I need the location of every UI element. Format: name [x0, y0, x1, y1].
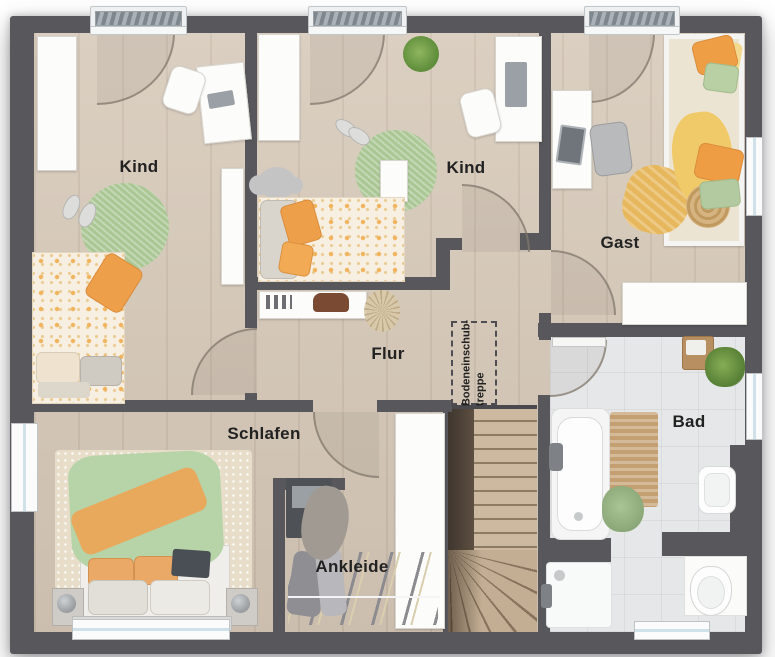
room-label-gast: Gast	[601, 233, 640, 253]
bed-foot-cushion	[38, 382, 90, 398]
room-label-flur: Flur	[371, 344, 404, 364]
roof-window-sill	[309, 26, 406, 34]
pillow	[36, 352, 80, 384]
wall-kind2-door-left-jamb	[436, 238, 462, 250]
roof-window-glass	[589, 11, 675, 26]
staircase-treads	[474, 408, 537, 550]
roof-window-glass	[95, 11, 182, 26]
attic-hatch-label: Bodeneinschub- treppe	[460, 320, 489, 406]
dried-grass-plant	[364, 290, 400, 332]
plant	[403, 36, 439, 72]
stool-with-towels	[589, 121, 634, 178]
wall-gast-bad	[538, 323, 745, 337]
roof-window-gast	[584, 6, 680, 35]
shoes	[266, 295, 292, 309]
wall-schlafen-top-right	[377, 400, 452, 412]
wardrobe	[37, 36, 77, 171]
pillow-white	[88, 580, 148, 615]
nightstand-lamp	[57, 594, 76, 613]
shower-faucet	[541, 584, 552, 608]
window-bad-bottom	[634, 621, 710, 640]
roof-window-kind2	[308, 6, 407, 35]
towel-green	[602, 486, 644, 532]
cloud-shelf	[258, 167, 296, 199]
handbag	[313, 293, 349, 312]
nightstand-lamp	[231, 594, 250, 613]
tall-wardrobe	[221, 168, 244, 285]
window-schlafen-left	[11, 423, 38, 512]
monitor	[505, 62, 527, 107]
staircase-shadow	[448, 550, 482, 632]
wardrobe	[258, 34, 300, 141]
laptop	[555, 124, 586, 165]
stool-towels	[686, 340, 706, 355]
wardrobe-small	[380, 160, 408, 202]
pillow-orange	[277, 240, 314, 277]
shower-drain	[554, 570, 565, 581]
bad-door-leaf	[552, 337, 606, 347]
roof-window-sill	[91, 26, 186, 34]
wall-tub-shower-ledge	[538, 538, 611, 562]
roof-window-sill	[585, 26, 679, 34]
wall-toilet-halfwall	[662, 532, 745, 556]
sideboard	[622, 282, 747, 325]
sink-bowl	[704, 473, 730, 507]
folded-clothes	[171, 549, 211, 579]
room-label-ankleide: Ankleide	[315, 557, 388, 577]
toilet-seat	[697, 576, 725, 609]
roof-window-glass	[313, 11, 402, 26]
window-gast-right	[746, 137, 763, 216]
room-label-bad: Bad	[672, 412, 705, 432]
pillow-white	[150, 580, 210, 615]
room-label-schlafen: Schlafen	[227, 424, 300, 444]
roof-window-kind1	[90, 6, 187, 35]
staircase-side	[448, 408, 474, 550]
window-schlafen-bottom	[72, 619, 230, 640]
bathtub-drain	[574, 512, 583, 521]
room-label-kind-left: Kind	[120, 157, 159, 177]
bathtub-faucet	[549, 443, 563, 471]
plant	[705, 347, 745, 387]
pillow-green	[702, 62, 740, 94]
room-label-kind-middle: Kind	[447, 158, 486, 178]
window-bad-right	[746, 373, 763, 440]
pillow-green	[699, 178, 742, 210]
wall-ankleide-left	[273, 480, 285, 632]
clothes-rail	[288, 596, 440, 598]
floor-plan: Kind Kind Gast Bodeneinschub- treppe Flu…	[0, 0, 775, 657]
